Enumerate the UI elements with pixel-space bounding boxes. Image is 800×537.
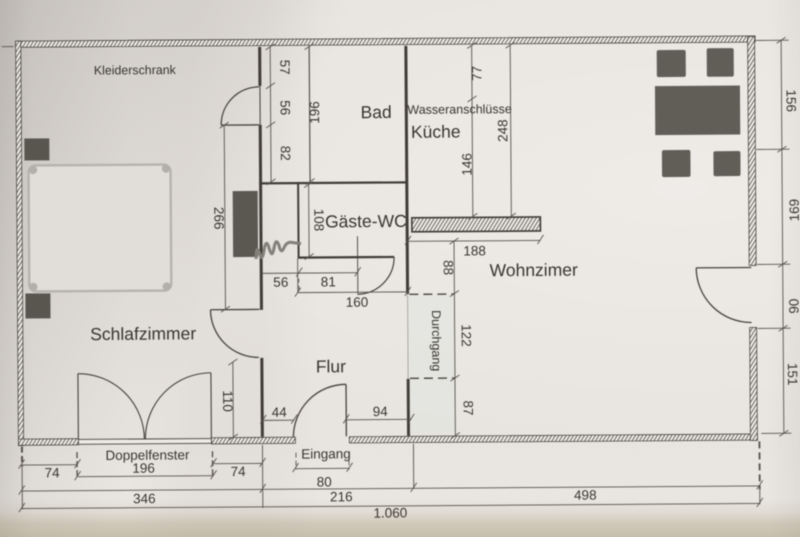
svg-text:Wohnzimer: Wohnzimer <box>490 260 578 281</box>
svg-text:77: 77 <box>469 66 484 81</box>
svg-text:196: 196 <box>307 101 322 124</box>
svg-text:188: 188 <box>463 243 486 258</box>
svg-text:94: 94 <box>373 404 389 419</box>
svg-text:196: 196 <box>132 461 155 476</box>
svg-text:Schlafzimmer: Schlafzimmer <box>90 323 196 344</box>
svg-text:151: 151 <box>785 363 800 386</box>
svg-text:74: 74 <box>45 465 61 480</box>
svg-text:82: 82 <box>278 146 293 161</box>
svg-text:88: 88 <box>441 260 456 275</box>
svg-text:169: 169 <box>787 199 800 222</box>
svg-text:110: 110 <box>220 390 235 412</box>
svg-text:74: 74 <box>231 464 247 479</box>
svg-text:Küche: Küche <box>411 121 461 141</box>
svg-text:56: 56 <box>278 100 293 115</box>
svg-text:90: 90 <box>786 299 800 314</box>
svg-text:108: 108 <box>311 209 326 232</box>
svg-text:Kleiderschrank: Kleiderschrank <box>94 63 177 78</box>
svg-text:346: 346 <box>133 491 156 506</box>
svg-text:160: 160 <box>346 295 369 310</box>
svg-text:80: 80 <box>317 474 332 489</box>
svg-text:216: 216 <box>330 489 353 504</box>
svg-text:Wasseranschlüsse: Wasseranschlüsse <box>407 102 512 117</box>
svg-text:498: 498 <box>574 488 597 503</box>
svg-text:1.060: 1.060 <box>373 505 407 520</box>
svg-text:81: 81 <box>321 274 336 289</box>
svg-text:56: 56 <box>273 275 288 290</box>
svg-text:87: 87 <box>461 400 476 415</box>
svg-text:Flur: Flur <box>316 356 346 376</box>
svg-text:44: 44 <box>272 405 288 420</box>
svg-text:156: 156 <box>783 89 798 112</box>
svg-text:266: 266 <box>211 207 226 230</box>
svg-text:146: 146 <box>459 153 474 176</box>
svg-text:122: 122 <box>459 324 474 347</box>
svg-text:Bad: Bad <box>360 102 391 122</box>
svg-text:57: 57 <box>277 60 292 75</box>
svg-text:Durchgang: Durchgang <box>429 310 443 371</box>
svg-text:Eingang: Eingang <box>301 446 351 461</box>
svg-text:248: 248 <box>495 119 510 142</box>
svg-text:Gäste-WC: Gäste-WC <box>325 211 407 232</box>
